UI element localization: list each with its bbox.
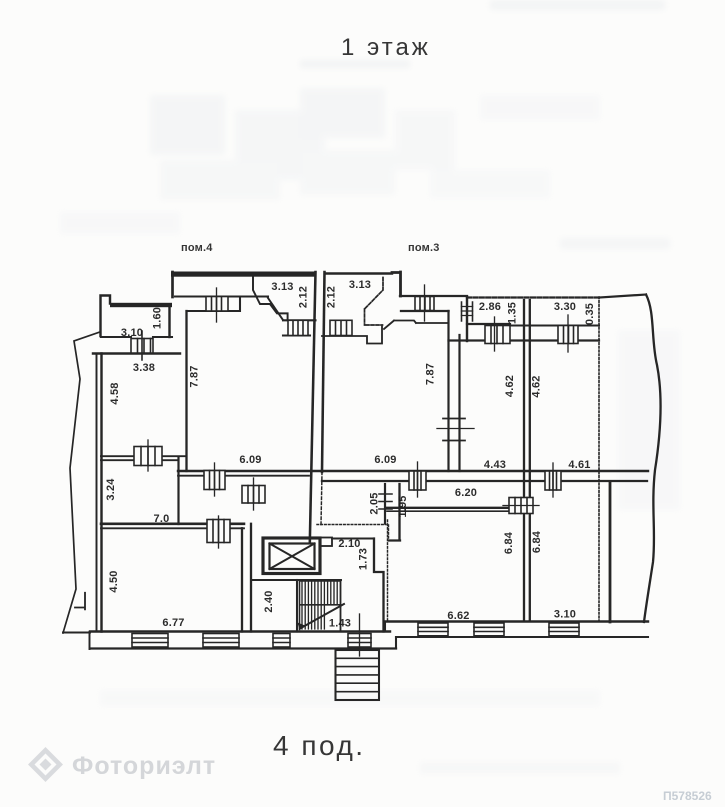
- svg-text:2.40: 2.40: [263, 590, 275, 612]
- svg-text:1.60: 1.60: [152, 307, 164, 329]
- svg-text:6.09: 6.09: [374, 454, 396, 466]
- svg-text:6.84: 6.84: [531, 530, 543, 553]
- svg-text:4.61: 4.61: [568, 459, 590, 471]
- svg-text:3.13: 3.13: [349, 279, 371, 291]
- svg-text:пом.3: пом.3: [408, 242, 440, 254]
- svg-text:6.84: 6.84: [503, 531, 515, 554]
- svg-text:3.13: 3.13: [271, 281, 293, 293]
- svg-text:0.35: 0.35: [584, 303, 596, 325]
- svg-text:4.62: 4.62: [504, 375, 516, 397]
- svg-text:1.95: 1.95: [397, 495, 409, 517]
- svg-text:пом.4: пом.4: [181, 242, 213, 254]
- svg-text:1.35: 1.35: [507, 302, 519, 324]
- svg-text:3.10: 3.10: [554, 609, 576, 621]
- svg-text:2.12: 2.12: [326, 286, 338, 308]
- svg-text:1.43: 1.43: [329, 618, 351, 630]
- svg-text:7.87: 7.87: [425, 363, 437, 385]
- svg-text:2.86: 2.86: [479, 301, 501, 313]
- svg-text:7.0: 7.0: [154, 513, 170, 525]
- svg-text:6.77: 6.77: [162, 617, 184, 629]
- svg-text:6.09: 6.09: [239, 454, 261, 466]
- svg-text:4.62: 4.62: [531, 375, 543, 397]
- svg-text:6.62: 6.62: [447, 610, 469, 622]
- svg-text:3.10: 3.10: [121, 327, 143, 339]
- svg-text:3.24: 3.24: [105, 478, 117, 501]
- svg-text:1 этаж: 1 этаж: [341, 34, 431, 61]
- svg-text:2.05: 2.05: [369, 492, 381, 514]
- svg-text:П578526: П578526: [663, 789, 712, 803]
- svg-text:4.43: 4.43: [484, 459, 506, 471]
- svg-text:Фоториэлт: Фоториэлт: [72, 752, 216, 780]
- svg-text:2.12: 2.12: [298, 286, 310, 308]
- svg-text:3.38: 3.38: [133, 362, 155, 374]
- svg-text:6.20: 6.20: [455, 487, 477, 499]
- svg-text:4 под.: 4 под.: [273, 730, 366, 761]
- svg-text:3.30: 3.30: [554, 301, 576, 313]
- svg-text:4.58: 4.58: [109, 382, 121, 404]
- svg-text:7.87: 7.87: [189, 365, 201, 387]
- svg-text:1.73: 1.73: [358, 548, 370, 570]
- svg-text:4.50: 4.50: [108, 570, 120, 592]
